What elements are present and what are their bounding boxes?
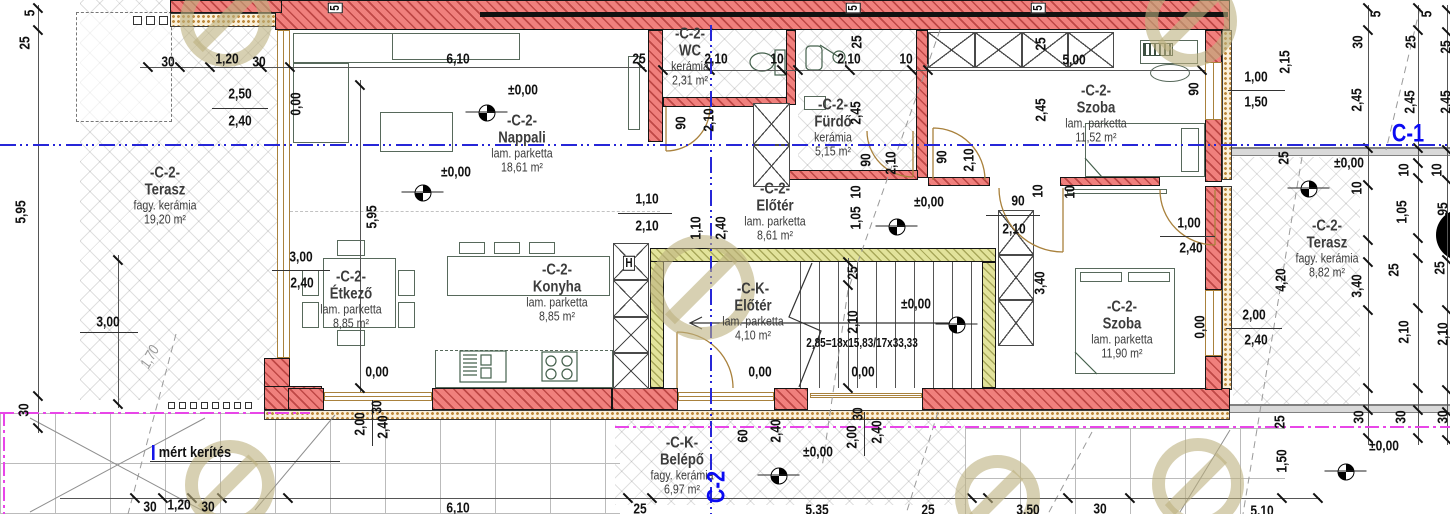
- dimension-label: 5: [1369, 11, 1384, 18]
- dimension-label: H: [623, 256, 635, 271]
- room-code: -C-2-: [1296, 218, 1359, 235]
- room-name: Szoba: [1091, 316, 1152, 333]
- room-label: -C-2-Fürdőkerámia5,15 m²: [814, 97, 852, 158]
- room-finish: lam. parketta: [722, 315, 783, 329]
- section-marker-label: C-1: [1392, 120, 1424, 149]
- room-area: 11,90 m²: [1091, 347, 1152, 361]
- dimension-label: 2,45: [1034, 98, 1049, 121]
- room-name: WC: [671, 43, 709, 60]
- room-finish: lam. parketta: [491, 147, 552, 161]
- dimension-label: 3,00: [289, 250, 312, 265]
- dimension-line: [38, 5, 39, 433]
- dimension-label: 5: [1031, 3, 1046, 13]
- room-label: -C-K-Előtérlam. parketta4,10 m²: [722, 281, 783, 342]
- burner-icon: [546, 356, 556, 366]
- level-marker-icon: [479, 105, 496, 122]
- room-label: -C-2-Nappalilam. parketta18,61 m²: [491, 113, 552, 174]
- dimension-line: [663, 70, 1205, 71]
- dimension-label: 30: [1093, 502, 1106, 514]
- room-finish: lam. parketta: [744, 215, 805, 229]
- dimension-label: 10: [899, 52, 912, 67]
- room-name: Étkező: [320, 286, 381, 303]
- room-area: 8,85 m²: [526, 310, 587, 324]
- dimension-label: 25: [632, 52, 645, 67]
- dimension-label: 25: [1277, 151, 1292, 164]
- room-name: Nappali: [491, 130, 552, 147]
- room-code: -C-2-: [491, 113, 552, 130]
- room-label: -C-2-Étkezőlam. parketta8,85 m²: [320, 269, 381, 330]
- room-area: 8,82 m²: [1296, 266, 1359, 280]
- fence-tick-icon: [152, 445, 155, 460]
- dimension-label: 90: [674, 116, 689, 129]
- dimension-label: 25: [1387, 263, 1402, 276]
- dimension-label: 3,50: [1016, 503, 1039, 514]
- dimension-label: 10: [1430, 163, 1445, 176]
- dimension-label: 90: [859, 153, 874, 166]
- room-area: 8,85 m²: [320, 317, 381, 331]
- fence-label: mért kerítés: [152, 444, 231, 461]
- dimension-label: 1,10: [689, 216, 704, 239]
- dimension-label: 2,10: [702, 108, 717, 131]
- sink-bowl-icon: [481, 355, 491, 365]
- dimension-label: 2,85=18x15,83/17x33,33: [806, 337, 918, 350]
- dimension-label: 30: [1352, 410, 1367, 423]
- dimension-label: 5,35: [805, 503, 828, 514]
- level-marker-icon: [949, 317, 966, 334]
- dimension-label: 60: [736, 429, 751, 442]
- dimension-label: 2,40: [1244, 333, 1267, 348]
- dimension-label: 2,10: [1436, 322, 1450, 345]
- dimension-label: 2,45: [1439, 90, 1450, 113]
- room-finish: lam. parketta: [320, 303, 381, 317]
- dimension-label: 30: [201, 500, 214, 514]
- dimension-label: 30: [370, 400, 385, 413]
- room-code: -C-K-: [722, 281, 783, 298]
- dimension-label: 2,10: [837, 52, 860, 67]
- room-name: Belépő: [651, 452, 714, 469]
- dimension-label: 25: [850, 35, 865, 48]
- room-name: Terasz: [134, 182, 197, 199]
- room-code: -C-2-: [320, 269, 381, 286]
- dimension-label: 1,20: [215, 52, 238, 67]
- room-code: -C-2-: [134, 165, 197, 182]
- dimension-line: [360, 80, 361, 392]
- dimension-line: [1418, 5, 1419, 445]
- fraction-line: [1226, 328, 1282, 329]
- room-finish: fagy. kerámia: [1296, 252, 1359, 266]
- dimension-label: 0,00: [1193, 315, 1208, 338]
- room-area: 11,52 m²: [1065, 131, 1126, 145]
- dimension-label: ±0,00: [901, 297, 931, 312]
- dimension-label: ±0,00: [1369, 439, 1399, 454]
- dimension-label: 2,10: [962, 148, 977, 171]
- dimension-label: 2,00: [845, 425, 860, 448]
- dimension-label: 10: [1063, 185, 1078, 198]
- property-line-magenta: [3, 412, 5, 514]
- room-label: -C-2-Teraszfagy. kerámia19,20 m²: [134, 165, 197, 226]
- shower-arm-icon: [820, 45, 839, 57]
- sink-bowl-icon: [481, 368, 491, 378]
- dimension-label: ±0,00: [508, 83, 538, 98]
- fraction-line: [618, 213, 672, 214]
- dimension-label: 25: [633, 502, 646, 514]
- room-name: Előtér: [722, 298, 783, 315]
- dimension-label: 2,40: [376, 415, 391, 438]
- dimension-label: 2,40: [769, 419, 784, 442]
- dimension-label: 10: [1397, 163, 1412, 176]
- room-area: 4,10 m²: [722, 329, 783, 343]
- dimension-label: 2,00: [1242, 308, 1265, 323]
- room-label: -C-2-WCkerámia2,31 m²: [671, 26, 709, 87]
- dimension-label: 30: [161, 55, 174, 70]
- washbasin-icon: [806, 46, 822, 70]
- dimension-label: 10: [1350, 181, 1365, 194]
- dimension-label: 2,10: [1002, 222, 1025, 237]
- dimension-label: 95: [1436, 202, 1450, 215]
- fraction-line: [1228, 90, 1285, 91]
- room-area: 2,31 m²: [671, 74, 709, 88]
- dimension-label: 2,10: [846, 310, 861, 333]
- fence-label-text: mért kerítés: [159, 444, 231, 461]
- room-label: -C-2-Szobalam. parketta11,90 m²: [1091, 299, 1152, 360]
- dimension-label: 30: [252, 55, 265, 70]
- level-marker-icon: [771, 468, 788, 485]
- room-finish: fagy. kerámia: [134, 199, 197, 213]
- dimension-label: 2,45: [1350, 88, 1365, 111]
- dimension-label: 0,00: [851, 365, 874, 380]
- dimension-label: 5,95: [14, 200, 29, 223]
- dimension-label: 90: [1011, 194, 1024, 209]
- dimension-label: 2,45: [1403, 90, 1418, 113]
- fraction-line: [212, 108, 268, 109]
- room-name: Terasz: [1296, 235, 1359, 252]
- dimension-label: 3,00: [96, 315, 119, 330]
- room-name: Szoba: [1065, 100, 1126, 117]
- section-marker-label: C-2: [703, 471, 732, 503]
- room-code: -C-2-: [814, 97, 852, 114]
- dimension-label: 2,40: [228, 114, 251, 129]
- room-area: 8,61 m²: [744, 229, 805, 243]
- dimension-label: 5: [1420, 11, 1435, 18]
- room-finish: lam. parketta: [526, 296, 587, 310]
- dimension-label: 2,00: [353, 412, 368, 435]
- room-code: -C-2-: [1065, 83, 1126, 100]
- property-line-magenta: [0, 412, 310, 414]
- burner-icon: [546, 369, 556, 379]
- dimension-label: 30: [1351, 35, 1366, 48]
- room-finish: lam. parketta: [1091, 333, 1152, 347]
- dimension-label: ±0,00: [441, 165, 471, 180]
- dimension-line: [1368, 5, 1369, 445]
- room-name: Fürdő: [814, 114, 852, 131]
- dimension-label: 5: [328, 3, 343, 13]
- dimension-label: 1,20: [167, 498, 190, 513]
- room-code: -C-2-: [671, 26, 709, 43]
- floor-plan-canvas: mért kerítés 301,20302,502,406,10252,101…: [0, 0, 1450, 514]
- fraction-line: [1160, 236, 1215, 237]
- dimension-label: 25: [1433, 261, 1448, 274]
- dimension-label: 10: [849, 185, 864, 198]
- dimension-label: 1,05: [1395, 200, 1410, 223]
- dimension-label: 5: [23, 10, 38, 17]
- fraction-line: [986, 215, 1040, 216]
- room-finish: lam. parketta: [1065, 117, 1126, 131]
- dimension-label: 3,40: [1033, 271, 1048, 294]
- section-line-c1: [0, 144, 1450, 146]
- dimension-label: 30: [17, 403, 32, 416]
- dimension-label: 25: [1273, 415, 1288, 428]
- dimension-label: 1,05: [849, 206, 864, 229]
- dimension-label: 90: [935, 150, 950, 163]
- room-label: -C-2-Teraszfagy. kerámia8,82 m²: [1296, 218, 1359, 279]
- room-label: -C-2-Előtérlam. parketta8,61 m²: [744, 181, 805, 242]
- room-label: -C-2-Konyhalam. parketta8,85 m²: [526, 262, 587, 323]
- room-code: -C-2-: [744, 181, 805, 198]
- dimension-label: 25: [18, 36, 33, 49]
- dimension-label: 5,95: [365, 205, 380, 228]
- dimension-label: 2,40: [290, 276, 313, 291]
- dimension-label: ±0,00: [1334, 156, 1364, 171]
- dimension-label: 90: [1187, 82, 1202, 95]
- dimension-label: 6,10: [446, 501, 469, 514]
- dimension-label: ±0,00: [803, 445, 833, 460]
- level-marker-icon: [1338, 464, 1355, 481]
- room-code: -C-K-: [651, 435, 714, 452]
- burner-icon: [562, 369, 572, 379]
- room-area: 5,15 m²: [814, 145, 852, 159]
- dimension-label: 1,10: [635, 192, 658, 207]
- stair-break-line: [789, 263, 821, 387]
- dimension-label: 30: [1394, 410, 1409, 423]
- dimension-label: 2,50: [228, 87, 251, 102]
- dimension-label: 5,10: [1250, 504, 1273, 514]
- room-label: -C-2-Szobalam. parketta11,52 m²: [1065, 83, 1126, 144]
- property-line-magenta: [615, 426, 1450, 428]
- dimension-label: 0,00: [365, 365, 388, 380]
- dimension-label: 25: [846, 266, 861, 279]
- dimension-label: 25: [1439, 40, 1450, 53]
- dimension-label: 2,40: [1179, 241, 1202, 256]
- dimension-label: 4,20: [1274, 268, 1289, 291]
- room-code: -C-2-: [1091, 299, 1152, 316]
- fraction-line: [80, 332, 138, 333]
- level-marker-icon: [889, 219, 906, 236]
- room-area: 18,61 m²: [491, 161, 552, 175]
- dimension-label: ±0,00: [914, 195, 944, 210]
- sink-drainer-icon: [463, 355, 477, 375]
- dimension-label: 1,50: [1244, 95, 1267, 110]
- dimension-label: 2,10: [884, 151, 899, 174]
- dimension-label: 30: [851, 407, 866, 420]
- dimension-label: 25: [921, 503, 934, 514]
- dimension-line: [1447, 5, 1448, 445]
- dimension-label: 1,50: [1275, 449, 1290, 472]
- dimension-label: 1,00: [1244, 70, 1267, 85]
- dimension-label: 25: [1034, 37, 1049, 50]
- dimension-label: 2,10: [1397, 320, 1412, 343]
- dimension-label: 30: [143, 500, 156, 514]
- room-finish: kerámia: [814, 131, 852, 145]
- dimension-label: 1,00: [1177, 216, 1200, 231]
- dimension-label: 6,10: [446, 52, 469, 67]
- dimension-label: 2,10: [635, 219, 658, 234]
- dimension-label: 25: [1404, 35, 1419, 48]
- room-code: -C-2-: [526, 262, 587, 279]
- dimension-label: 2,40: [870, 420, 885, 443]
- level-marker-icon: [415, 185, 432, 202]
- dimension-label: 10: [770, 52, 783, 67]
- level-marker-icon: [1301, 181, 1318, 198]
- dimension-label: 30: [1436, 410, 1450, 423]
- room-finish: kerámia: [671, 60, 709, 74]
- room-name: Előtér: [744, 198, 805, 215]
- dimension-label: 0,00: [748, 365, 771, 380]
- room-name: Konyha: [526, 279, 587, 296]
- room-area: 19,20 m²: [134, 213, 197, 227]
- dimension-label: 5: [846, 3, 861, 13]
- dimension-label: 2,40: [714, 216, 729, 239]
- dimension-label: 2,15: [1278, 50, 1293, 73]
- burner-icon: [562, 356, 572, 366]
- dimension-label: 10: [1031, 184, 1046, 197]
- dimension-label: 5,00: [1062, 53, 1085, 68]
- dimension-label: 0,00: [289, 92, 304, 115]
